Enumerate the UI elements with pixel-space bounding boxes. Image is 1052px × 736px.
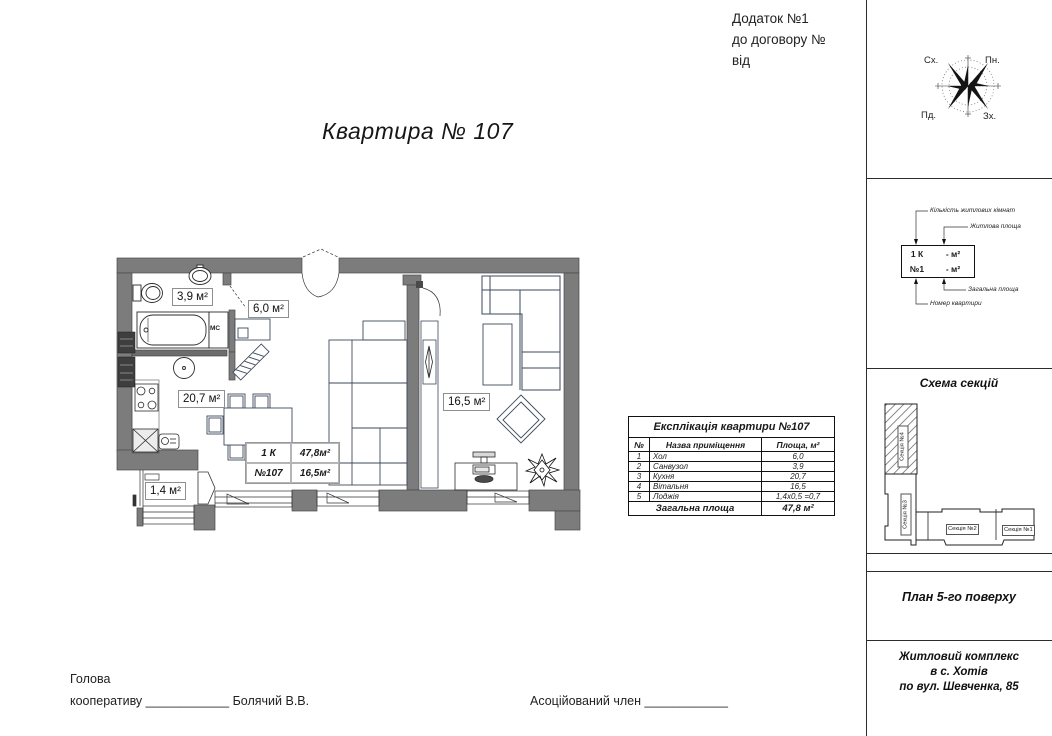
- document-page: Додаток №1 до договору № від Квартира № …: [0, 0, 1052, 736]
- armchair: [497, 395, 545, 443]
- bathroom-door: [230, 286, 246, 308]
- legend-label-total-area: Загальна площа: [968, 286, 1018, 293]
- shoe-bench: [233, 344, 269, 380]
- signature-right-line: Асоційований член ____________: [530, 694, 728, 708]
- row-area: 3,9: [762, 462, 834, 472]
- table-header-row: № Назва приміщення Площа, м²: [629, 438, 834, 452]
- col-header-area: Площа, м²: [762, 438, 834, 452]
- table-row: 3 Кухня 20,7: [629, 472, 834, 482]
- info-rooms: 1 К: [246, 443, 291, 463]
- entrance-door: [302, 249, 339, 297]
- section-3-label: Секція №3: [901, 494, 912, 536]
- small-appliance: [159, 434, 179, 449]
- row-area: 20,7: [762, 472, 834, 482]
- bathroom-area-label: 3,9 м²: [172, 288, 213, 306]
- signature-left-name: Болячий В.В.: [233, 694, 310, 708]
- compass-label-se: Зх.: [983, 111, 996, 122]
- mc-label: МС: [210, 325, 220, 332]
- toilet: [133, 284, 163, 303]
- table-total-label: Загальна площа: [629, 502, 762, 515]
- table-row: 5 Лоджія 1,4х0,5 =0,7: [629, 492, 834, 502]
- coffee-table: [483, 324, 512, 385]
- hall-area-label: 6,0 м²: [248, 300, 289, 318]
- table-title: Експлікація квартири №107: [629, 417, 834, 438]
- table-row: 2 Санвузол 3,9: [629, 462, 834, 472]
- signature-left-blank: ____________: [146, 694, 229, 708]
- kitchen-window: [215, 491, 292, 507]
- col-header-name: Назва приміщення: [650, 438, 762, 452]
- living-room-door: [416, 281, 440, 316]
- bathtub: [137, 312, 209, 348]
- annex-line2: до договору №: [732, 29, 826, 50]
- desk-computer: [455, 452, 517, 490]
- complex-address: Житловий комплекс в с. Хотів по вул. Шев…: [866, 650, 1052, 695]
- section-2-label: Секція №2: [946, 524, 979, 535]
- legend-label-rooms: Кількість житлових кімнат: [930, 207, 1015, 214]
- row-area: 6,0: [762, 452, 834, 462]
- complex-line2: в с. Хотів: [866, 665, 1052, 680]
- info-living-area: 16,5м²: [291, 463, 339, 483]
- sidebar-divider-3: [866, 553, 1052, 554]
- info-apt-number: №107: [246, 463, 291, 483]
- row-area: 16,5: [762, 482, 834, 492]
- complex-line3: по вул. Шевченка, 85: [866, 680, 1052, 695]
- row-num: 2: [629, 462, 650, 472]
- compass-label-sw: Пд.: [921, 110, 936, 121]
- kitchen-sink: [133, 429, 158, 452]
- hall-cabinet: [235, 319, 270, 340]
- row-name: Вітальня: [650, 482, 762, 492]
- page-title: Квартира № 107: [322, 118, 513, 145]
- washing-machine: [174, 358, 195, 379]
- compass-label-nw: Сх.: [924, 55, 938, 66]
- compass-label-ne: Пн.: [985, 55, 1000, 66]
- legend-box: 1 К - м² №1 - м²: [901, 245, 975, 278]
- table-row: 1 Хол 6,0: [629, 452, 834, 462]
- row-num: 4: [629, 482, 650, 492]
- info-total-area: 47,8м²: [291, 443, 339, 463]
- table-row: 4 Вітальня 16,5: [629, 482, 834, 492]
- legend-label-living-area: Житлова площа: [970, 223, 1021, 230]
- legend-box-number: №1: [902, 262, 932, 278]
- legend-label-apt-number: Номер квартири: [930, 300, 982, 307]
- sidebar-divider-2: [866, 368, 1052, 369]
- section-4-label: Секція №4: [898, 426, 909, 468]
- corner-sofa: [482, 276, 560, 390]
- sidebar-divider-5: [866, 640, 1052, 641]
- row-area: 1,4х0,5 =0,7: [762, 492, 834, 502]
- stove: [135, 384, 158, 411]
- window-3: [467, 491, 529, 504]
- window-2: [317, 491, 379, 506]
- row-num: 1: [629, 452, 650, 462]
- annex-block: Додаток №1 до договору № від: [732, 8, 826, 71]
- apartment-legend: Кількість житлових кімнат Житлова площа …: [878, 202, 1052, 320]
- row-num: 5: [629, 492, 650, 502]
- wardrobe: [329, 340, 407, 485]
- row-name: Кухня: [650, 472, 762, 482]
- row-num: 3: [629, 472, 650, 482]
- signature-right-role: Асоційований член: [530, 694, 641, 708]
- sidebar-divider-4: [866, 571, 1052, 572]
- sidebar-divider-1: [866, 178, 1052, 179]
- living-area-label: 16,5 м²: [443, 393, 490, 411]
- hall-top-closet: [363, 321, 405, 340]
- kitchen-area-label: 20,7 м²: [178, 390, 225, 408]
- col-header-num: №: [629, 438, 650, 452]
- loggia-area-label: 1,4 м²: [145, 482, 186, 500]
- legend-box-total: - м²: [932, 262, 974, 278]
- floor-plan-label: План 5-го поверху: [866, 590, 1052, 604]
- sections-scheme-title: Схема секцій: [866, 376, 1052, 390]
- table-total-value: 47,8 м²: [762, 502, 834, 515]
- section-1-label: Секція №1: [1002, 525, 1035, 536]
- signature-left-role: кооперативу: [70, 694, 142, 708]
- signature-left-line: кооперативу ____________ Болячий В.В.: [70, 694, 309, 708]
- explication-table: Експлікація квартири №107 № Назва приміщ…: [628, 416, 835, 516]
- legend-box-living: - м²: [932, 246, 974, 262]
- complex-line1: Житловий комплекс: [866, 650, 1052, 665]
- table-footer-row: Загальна площа 47,8 м²: [629, 502, 834, 515]
- row-name: Хол: [650, 452, 762, 462]
- annex-line1: Додаток №1: [732, 8, 826, 29]
- legend-box-rooms: 1 К: [902, 246, 932, 262]
- loggia-door: [198, 472, 215, 504]
- apartment-info-box: 1 К 47,8м² №107 16,5м²: [245, 442, 340, 484]
- signature-left-title: Голова: [70, 672, 110, 686]
- row-name: Санвузол: [650, 462, 762, 472]
- tv-unit: [421, 321, 438, 488]
- plant-icon: [526, 454, 559, 486]
- vent-shafts: [118, 332, 135, 387]
- signature-right-blank: ____________: [645, 694, 728, 708]
- row-name: Лоджія: [650, 492, 762, 502]
- annex-line3: від: [732, 50, 826, 71]
